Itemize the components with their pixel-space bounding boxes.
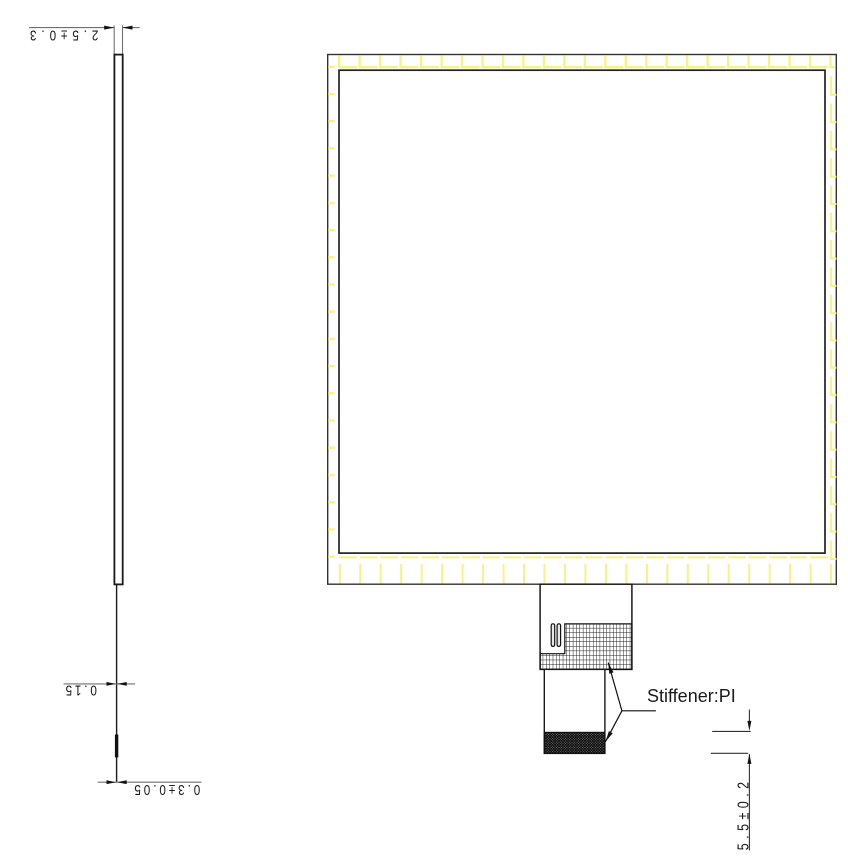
svg-text:0.15: 0.15 — [66, 682, 97, 699]
svg-text:0.3±0.05: 0.3±0.05 — [134, 782, 200, 799]
svg-text:Stiffener:PI: Stiffener:PI — [647, 686, 736, 706]
svg-text:5.5±0.2: 5.5±0.2 — [735, 782, 753, 850]
svg-text:2.5±0.3: 2.5±0.3 — [30, 27, 98, 44]
